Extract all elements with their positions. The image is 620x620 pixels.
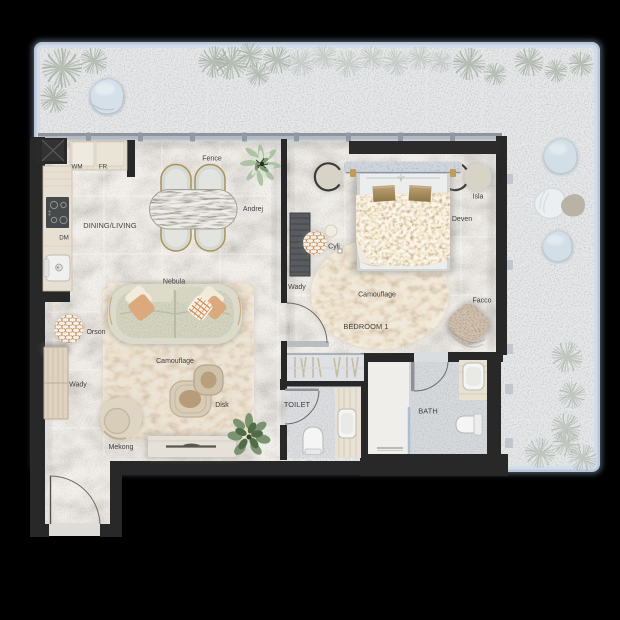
svg-text:TOILET: TOILET xyxy=(284,400,311,409)
svg-text:Andrej: Andrej xyxy=(243,206,264,213)
svg-text:Isla: Isla xyxy=(473,194,484,201)
svg-text:Cyli: Cyli xyxy=(328,244,340,251)
svg-text:WM: WM xyxy=(72,164,83,171)
svg-text:Fence: Fence xyxy=(202,156,222,163)
svg-text:Nebula: Nebula xyxy=(163,279,185,286)
svg-text:DINING/LIVING: DINING/LIVING xyxy=(83,221,137,230)
svg-text:Camouflage: Camouflage xyxy=(156,358,194,365)
svg-text:Mekong: Mekong xyxy=(109,444,134,451)
svg-text:FR: FR xyxy=(99,164,108,171)
svg-text:Camouflage: Camouflage xyxy=(358,292,396,299)
svg-text:DM: DM xyxy=(59,235,69,242)
svg-text:Disk: Disk xyxy=(215,402,229,409)
svg-text:Facco: Facco xyxy=(472,298,491,305)
svg-text:Deven: Deven xyxy=(452,216,472,223)
svg-text:BEDROOM 1: BEDROOM 1 xyxy=(343,322,388,331)
svg-text:Wady: Wady xyxy=(69,382,87,389)
svg-text:Orson: Orson xyxy=(86,329,105,336)
svg-text:BATH: BATH xyxy=(418,407,438,416)
svg-text:Wady: Wady xyxy=(288,284,306,291)
